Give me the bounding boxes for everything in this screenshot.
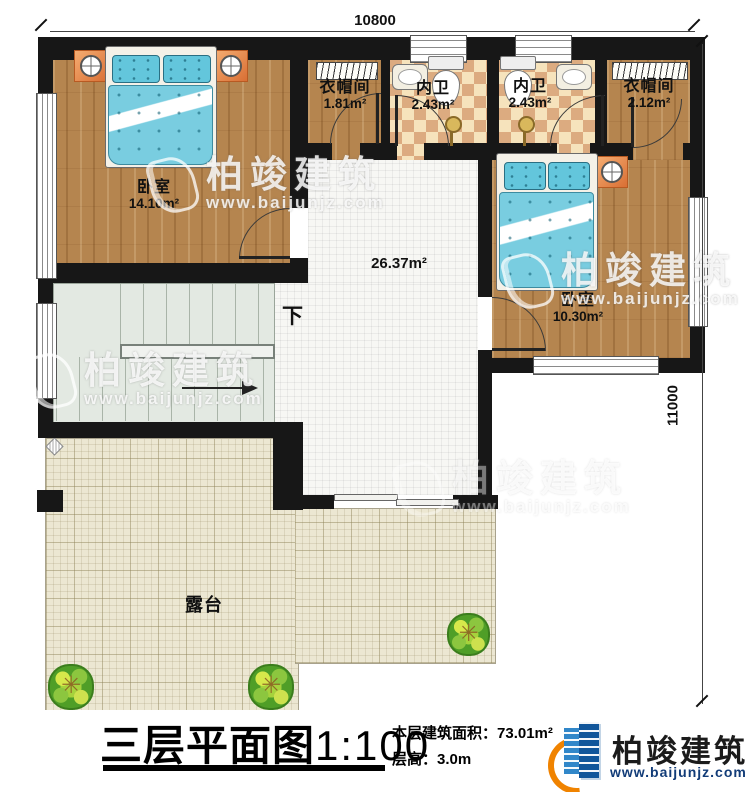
pillow	[504, 162, 546, 190]
wall	[453, 495, 498, 509]
brand-logo-icon	[548, 722, 606, 784]
stair-handrail	[120, 344, 275, 359]
room-label-bath1: 内卫 2.43m²	[387, 81, 479, 112]
room-label-cloakroom2: 衣帽间 2.12m²	[603, 79, 695, 110]
stair-treads-upper	[120, 284, 273, 345]
stair-treads-lower	[56, 357, 273, 421]
window	[533, 356, 659, 375]
floor-drain-icon	[518, 116, 535, 133]
toilet-icon	[428, 56, 464, 70]
floor-height-text: 层高：3.0m	[392, 748, 471, 769]
window	[688, 197, 708, 327]
hall-floor-lower	[273, 283, 478, 495]
toilet-icon	[500, 56, 536, 70]
title-block: 三层平面图1:100 本层建筑面积：73.01m² 层高：3.0m 柏竣建筑 w…	[0, 710, 750, 792]
window	[36, 93, 57, 279]
bed	[496, 153, 598, 291]
stair-arrow-shaft	[182, 387, 242, 389]
table-lamp-icon	[601, 161, 623, 183]
pillow	[163, 55, 211, 83]
pillow	[548, 162, 590, 190]
floor-drain-stem	[523, 131, 526, 146]
floor-drain-icon	[445, 116, 462, 133]
terrace-column	[37, 490, 63, 512]
bed	[105, 46, 217, 168]
clothes-rail	[316, 62, 378, 80]
blanket	[108, 85, 213, 165]
dimension-line-right	[702, 44, 703, 704]
room-label-bedroom2: 卧室 10.30m²	[532, 293, 624, 324]
dimension-top-label: 10800	[335, 12, 415, 29]
floor-title: 三层平面图	[100, 722, 315, 769]
wall	[296, 143, 332, 160]
dimension-right-label: 11000	[665, 381, 682, 431]
brand-website: www.baijunjz.com	[610, 764, 747, 780]
room-label-cloakroom1: 衣帽间 1.81m²	[299, 80, 391, 111]
table-lamp-icon	[220, 55, 242, 77]
terrace-sliding-door	[396, 499, 459, 506]
room-label-terrace: 露台	[158, 596, 250, 615]
table-lamp-icon	[80, 55, 102, 77]
terrace-sliding-door	[334, 494, 398, 501]
wall	[478, 350, 492, 508]
door-leaf	[239, 256, 290, 259]
floor-drain-stem	[450, 131, 453, 146]
stairwell	[53, 283, 275, 424]
wall	[360, 143, 397, 160]
wall	[657, 358, 705, 373]
floor-area-text: 本层建筑面积：73.01m²	[392, 722, 553, 743]
plant-icon	[48, 664, 94, 710]
room-label-bedroom1: 卧室 14.10m²	[108, 180, 200, 211]
nightstand	[214, 50, 248, 82]
blanket	[499, 192, 594, 288]
wall	[292, 495, 334, 509]
room-label-hall-area: 26.37m²	[353, 256, 445, 272]
dimension-line-top	[50, 31, 695, 32]
stair-direction-label: 下	[282, 300, 303, 330]
floor-plan: 下	[0, 0, 750, 792]
plant-icon	[447, 613, 490, 656]
wall	[478, 160, 492, 297]
title-underline	[103, 765, 385, 771]
stair-direction-arrow	[242, 381, 258, 395]
window	[36, 303, 57, 399]
wall	[492, 358, 533, 373]
drawing-title: 三层平面图1:100	[100, 712, 430, 773]
nightstand	[74, 50, 108, 82]
nightstand	[596, 156, 628, 188]
wall	[38, 263, 303, 283]
plant-icon	[248, 664, 294, 710]
wall	[38, 422, 303, 438]
room-label-bath2: 内卫 2.43m²	[484, 79, 576, 110]
pillow	[112, 55, 160, 83]
dimension-tick	[688, 19, 701, 32]
dimension-tick	[35, 19, 48, 32]
door-leaf	[492, 348, 545, 351]
